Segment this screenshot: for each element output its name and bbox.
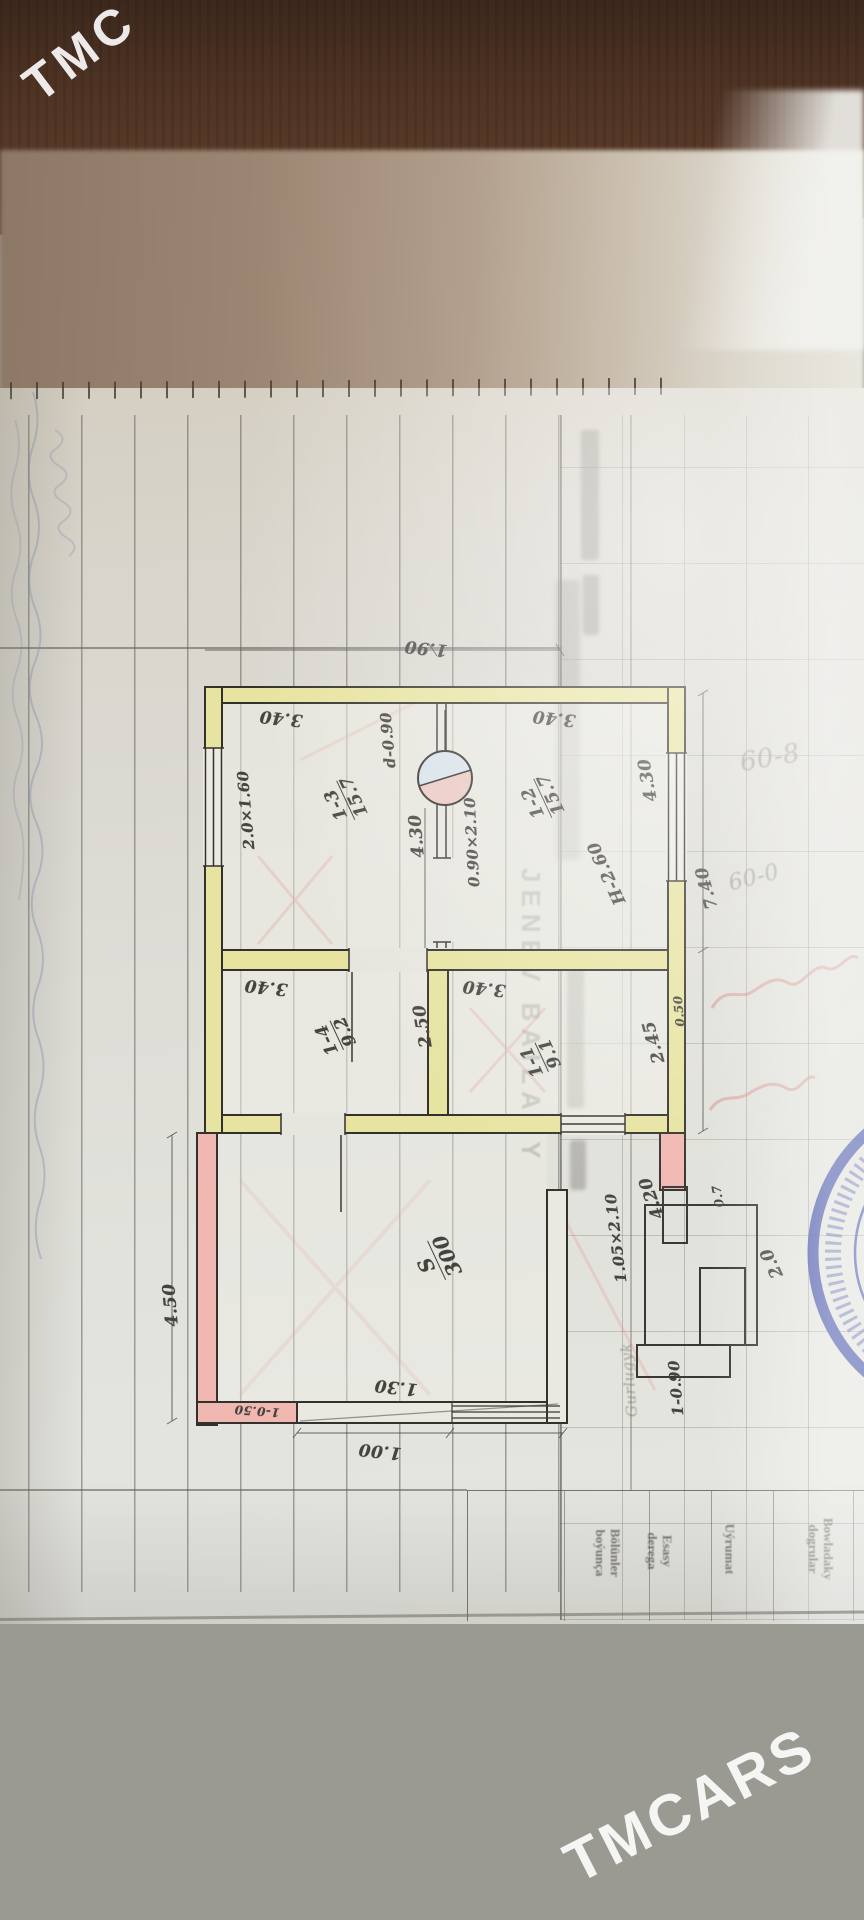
ruled-lines [28,415,562,1592]
table-header-line: Bölünler [608,1529,623,1577]
table-divider [853,1491,854,1621]
form-small-print [583,575,599,635]
table-header-line: Uýrumat [722,1524,737,1575]
table-divider [711,1491,712,1621]
form-small-print [567,958,584,1108]
table-divider [564,1491,565,1621]
table-header-line: Esasy [660,1535,675,1567]
form-stamp-text: JENEV BAILASY [515,868,546,1208]
table-header-4: Bowladaky dogrular [805,1518,835,1580]
table-header-line: boýunça [593,1530,608,1577]
ruled-hline-top [0,647,562,649]
table-header-3: Uýrumat [722,1524,737,1575]
photo: Bölünler boýunça Esasy derega Uýrumat Bo… [0,0,864,1920]
paper-corner-highlight [674,90,864,350]
dim-veranda-side: 4.50 [159,1283,183,1328]
form-grid-line [630,415,632,1490]
form-small-print [570,1140,586,1190]
table-header-1: Bölünler boýunça [592,1529,622,1577]
dim-stove-offset: 4.30 [405,814,429,859]
watermark-bottom-right: TMCARS [554,1713,827,1896]
table-header-2: Esasy derega [644,1532,674,1569]
table-header-line: Bowladaky [821,1518,836,1580]
note-wall-thickness: 0.50 [671,995,688,1027]
form-small-print [581,430,599,560]
table-header-line: dogrular [806,1524,821,1573]
ruled-hline-bottom [0,1489,467,1491]
table-header-line: derega [645,1532,660,1569]
table-divider [773,1491,774,1621]
form-grid [560,415,864,1620]
